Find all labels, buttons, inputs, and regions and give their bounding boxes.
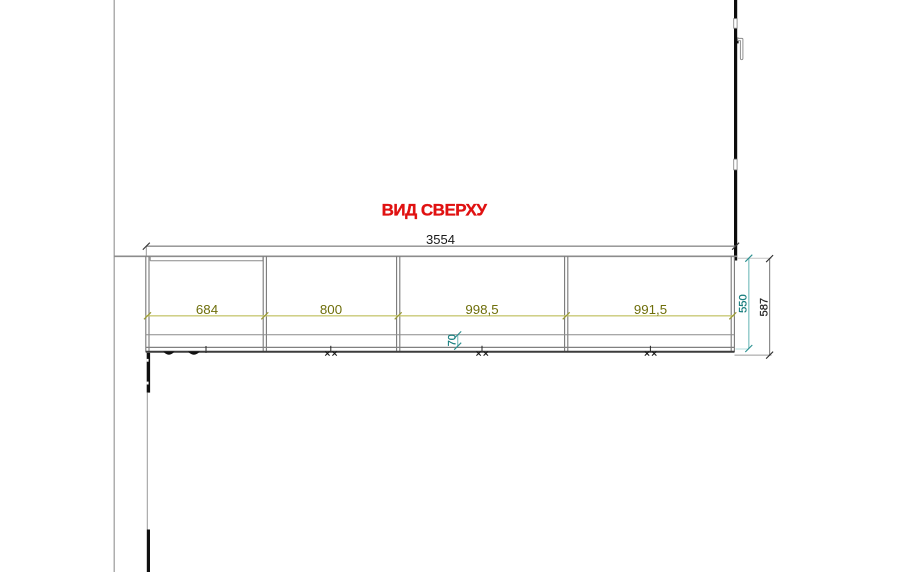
svg-text:991,5: 991,5	[634, 302, 667, 317]
svg-text:800: 800	[320, 302, 342, 317]
svg-text:550: 550	[738, 294, 750, 313]
svg-text:ВИД СВЕРХУ: ВИД СВЕРХУ	[382, 200, 488, 219]
svg-text:684: 684	[196, 302, 218, 317]
svg-text:70: 70	[447, 334, 459, 346]
svg-text:998,5: 998,5	[465, 302, 498, 317]
svg-text:587: 587	[758, 298, 770, 317]
svg-text:3554: 3554	[426, 232, 455, 247]
